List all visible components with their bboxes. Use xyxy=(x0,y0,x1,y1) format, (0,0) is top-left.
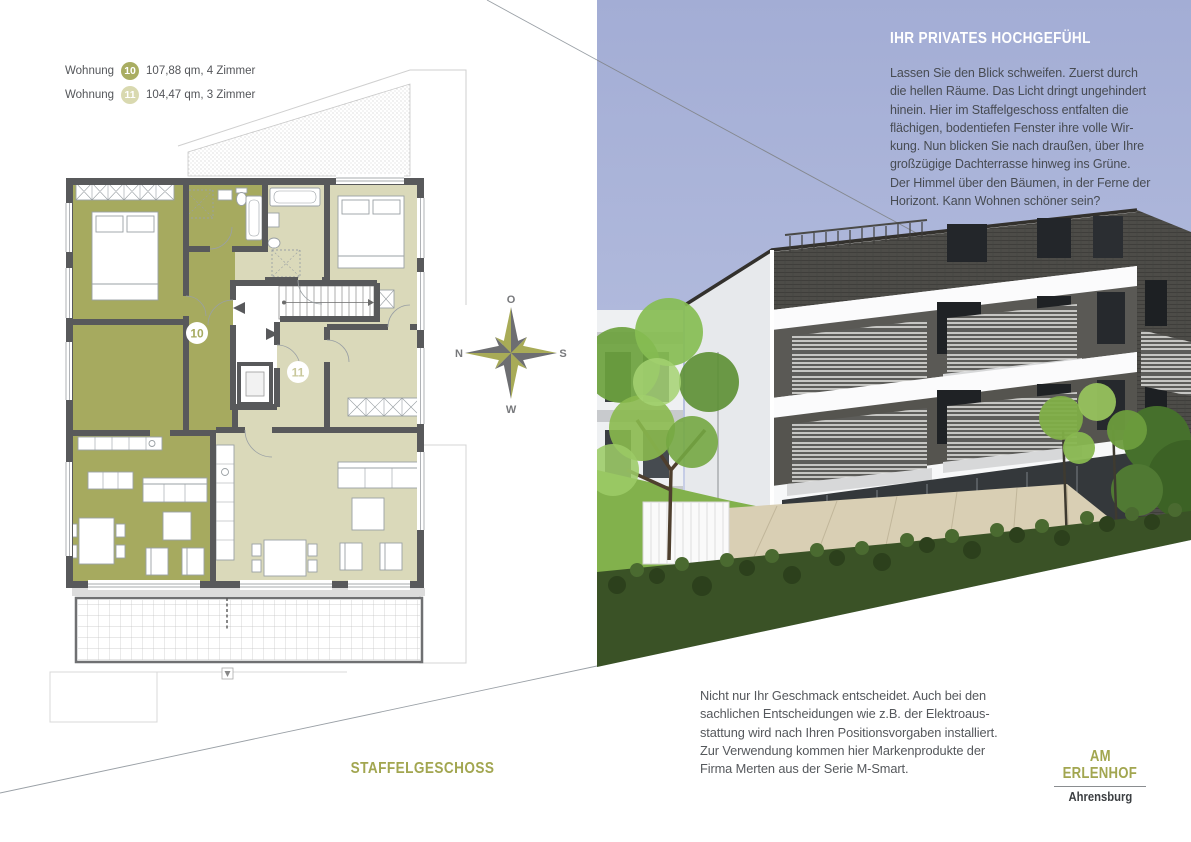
hero-line: die hellen Räume. Das Licht dringt ungeh… xyxy=(890,82,1150,100)
plan-caption: STAFFELGESCHOSS xyxy=(330,760,515,778)
garage xyxy=(643,502,729,564)
hero-line: hinein. Hier im Staffelgeschoss entfalte… xyxy=(890,101,1150,119)
footer-line: Firma Merten aus der Serie M-Smart. xyxy=(700,760,998,778)
brand-divider xyxy=(1054,786,1146,787)
brochure-page: Wohnung 10 107,88 qm, 4 Zimmer Wohnung 1… xyxy=(0,0,1191,842)
hero-headline: IHR PRIVATES HOCHGEFÜHL xyxy=(890,30,1126,48)
elevator xyxy=(239,364,271,404)
brand-line-1: AM xyxy=(1052,748,1148,765)
footer-line: Nicht nur Ihr Geschmack entscheidet. Auc… xyxy=(700,687,998,705)
hero-line: Lassen Sie den Blick schweifen. Zuerst d… xyxy=(890,64,1150,82)
bed-w11 xyxy=(338,196,404,268)
floor-plan: 10 11 xyxy=(40,55,480,735)
compass-star xyxy=(465,307,557,399)
bed-w10 xyxy=(92,212,158,300)
footer-line: sachlichen Entscheidungen wie z.B. der E… xyxy=(700,705,998,723)
compass-east-label: O xyxy=(507,294,516,306)
plan-badge-11: 11 xyxy=(292,366,305,380)
hero-line: kung. Nun blicken Sie nach draußen, über… xyxy=(890,137,1150,155)
footer-line: stattung wird nach Ihren Positionsvorgab… xyxy=(700,724,998,742)
footer-paragraph: Nicht nur Ihr Geschmack entscheidet. Auc… xyxy=(700,687,998,778)
hero-line: großzügige Dachterrasse hinweg ins Grüne… xyxy=(890,155,1150,173)
hero-line: Horizont. Kann Wohnen schöner sein? xyxy=(890,192,1150,210)
compass-south-label: S xyxy=(559,348,566,360)
hero-line: flächigen, bodentiefen Fenster ihre voll… xyxy=(890,119,1150,137)
footer-line: Zur Verwendung kommen hier Markenprodukt… xyxy=(700,742,998,760)
compass-north-label: N xyxy=(455,348,463,360)
brand-line-2: ERLENHOF xyxy=(1052,765,1148,782)
compass-west-label: W xyxy=(506,404,517,416)
staircase xyxy=(279,286,374,319)
plan-badge-10: 10 xyxy=(190,327,204,341)
brand-city: Ahrensburg xyxy=(1052,790,1148,804)
roof-terrace xyxy=(72,588,425,679)
wardrobe-w10 xyxy=(76,183,174,200)
compass-rose: O S W N xyxy=(454,290,568,420)
hero-line: Der Himmel über den Bäumen, in der Ferne… xyxy=(890,174,1150,192)
brand-logo: AM ERLENHOF Ahrensburg xyxy=(1052,748,1148,804)
hero-paragraph: Lassen Sie den Blick schweifen. Zuerst d… xyxy=(890,64,1150,210)
